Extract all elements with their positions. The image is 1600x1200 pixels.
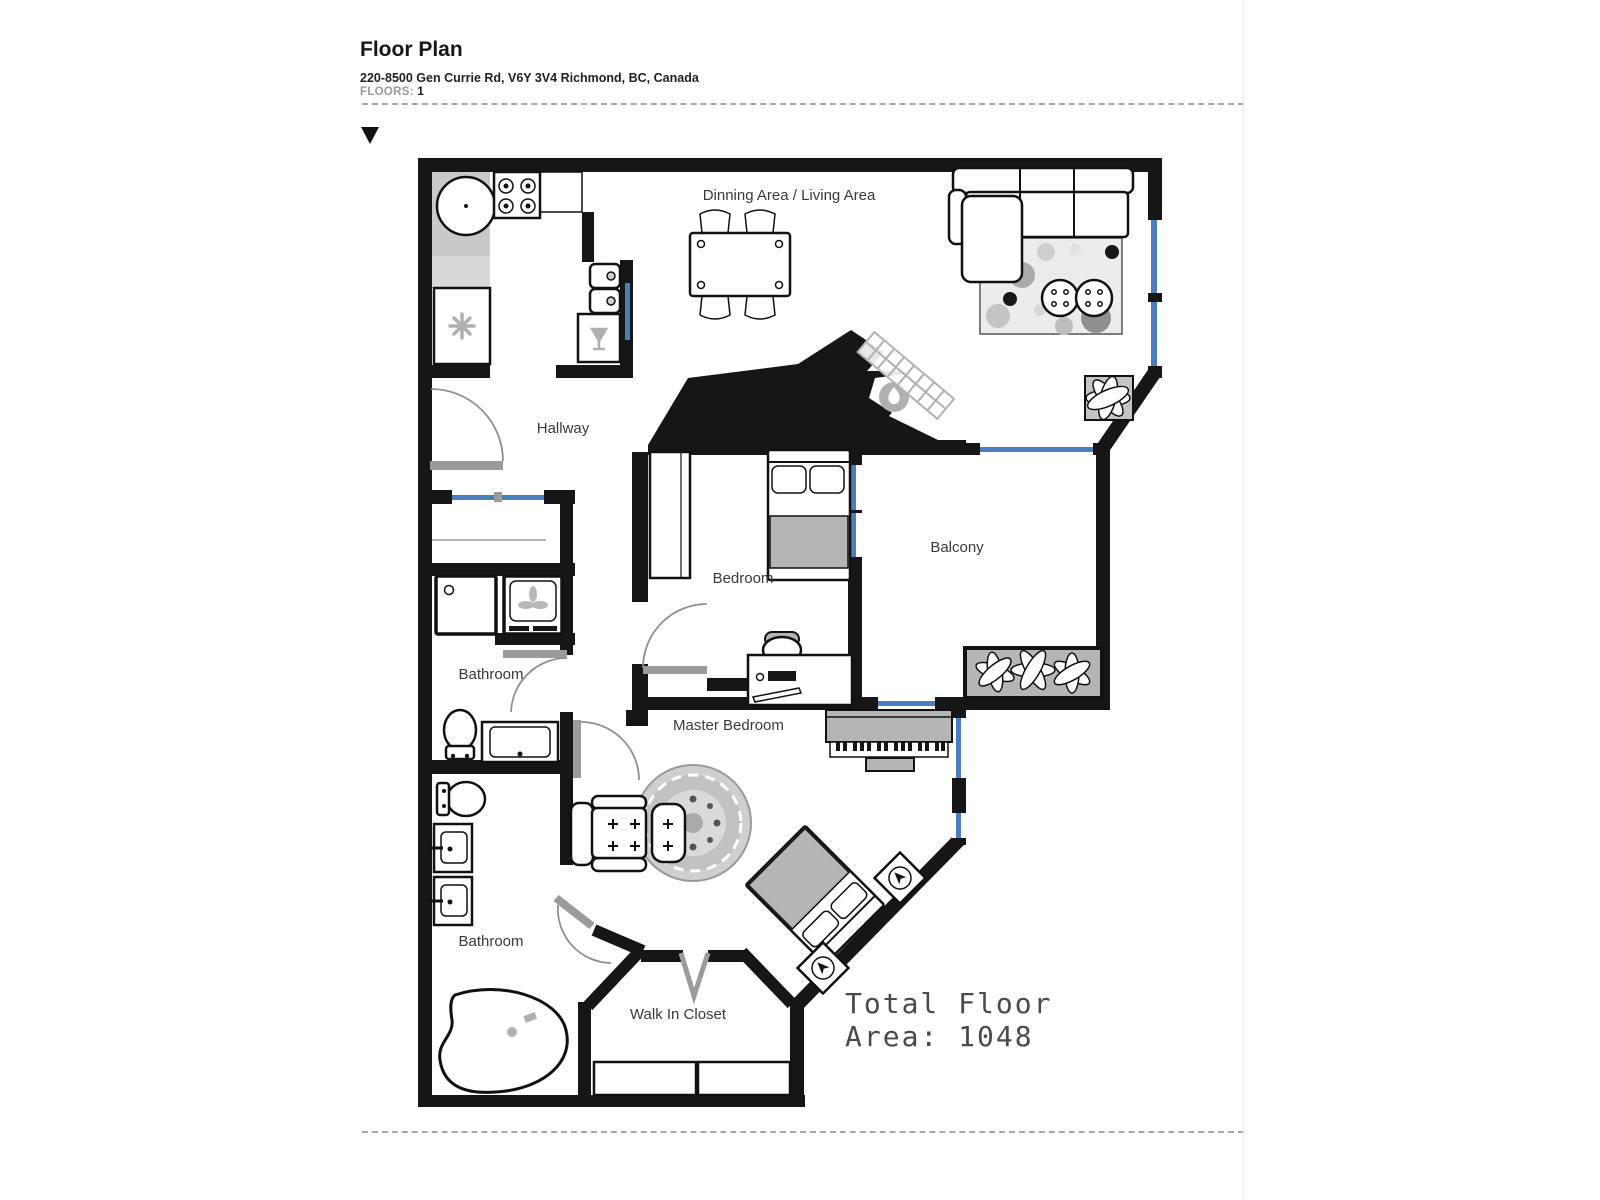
dining-chair xyxy=(745,210,775,233)
dining-table xyxy=(690,233,790,296)
armchair xyxy=(571,796,646,871)
label-walk-in-closet: Walk In Closet xyxy=(630,1006,727,1023)
stove xyxy=(494,172,540,218)
balcony-planter xyxy=(965,647,1102,698)
label-balcony: Balcony xyxy=(930,539,984,556)
fridge xyxy=(434,288,490,364)
floor-plan-page: Floor Plan 220-8500 Gen Currie Rd, V6Y 3… xyxy=(0,0,1600,1200)
floor-plan-drawing: Dinning Area / Living Area Hallway Bedro… xyxy=(0,0,1600,1200)
living-room xyxy=(949,168,1133,421)
closet-shelves xyxy=(594,1062,790,1095)
total-area: Total Floor Area: 1048 xyxy=(845,987,1052,1053)
nightstand xyxy=(875,853,926,904)
dining-chair xyxy=(700,296,730,319)
nightstand xyxy=(798,943,849,994)
toilet xyxy=(444,710,476,759)
chaise xyxy=(962,196,1022,282)
sink xyxy=(428,877,472,925)
kitchen-sink xyxy=(590,264,620,313)
label-bathroom-upper: Bathroom xyxy=(458,666,523,683)
wine-cabinet xyxy=(578,314,620,362)
kitchen xyxy=(432,172,620,364)
label-dining-living: Dinning Area / Living Area xyxy=(703,187,876,204)
plant-icon xyxy=(1085,375,1133,422)
shower xyxy=(436,576,496,634)
piano xyxy=(826,710,952,771)
label-master-bedroom: Master Bedroom xyxy=(673,717,784,734)
total-area-line1: Total Floor xyxy=(845,987,1052,1020)
label-bedroom: Bedroom xyxy=(713,570,774,587)
dining-chair xyxy=(745,296,775,319)
toilet xyxy=(437,782,485,816)
vanity-sink xyxy=(482,722,558,762)
wardrobe xyxy=(650,452,690,578)
snowflake-icon xyxy=(450,314,474,338)
desk-set xyxy=(748,632,852,705)
sink xyxy=(428,824,472,872)
dining-chair xyxy=(700,210,730,233)
label-bathroom-lower: Bathroom xyxy=(458,933,523,950)
bed xyxy=(768,450,850,580)
total-area-line2: Area: 1048 xyxy=(845,1020,1034,1053)
dining-set xyxy=(690,210,790,319)
label-hallway: Hallway xyxy=(537,420,590,437)
bathtub xyxy=(440,990,568,1093)
washer xyxy=(504,576,562,634)
ottoman-chair xyxy=(652,804,685,862)
down-triangle-icon xyxy=(361,127,379,144)
closet-door-mark xyxy=(681,953,708,996)
